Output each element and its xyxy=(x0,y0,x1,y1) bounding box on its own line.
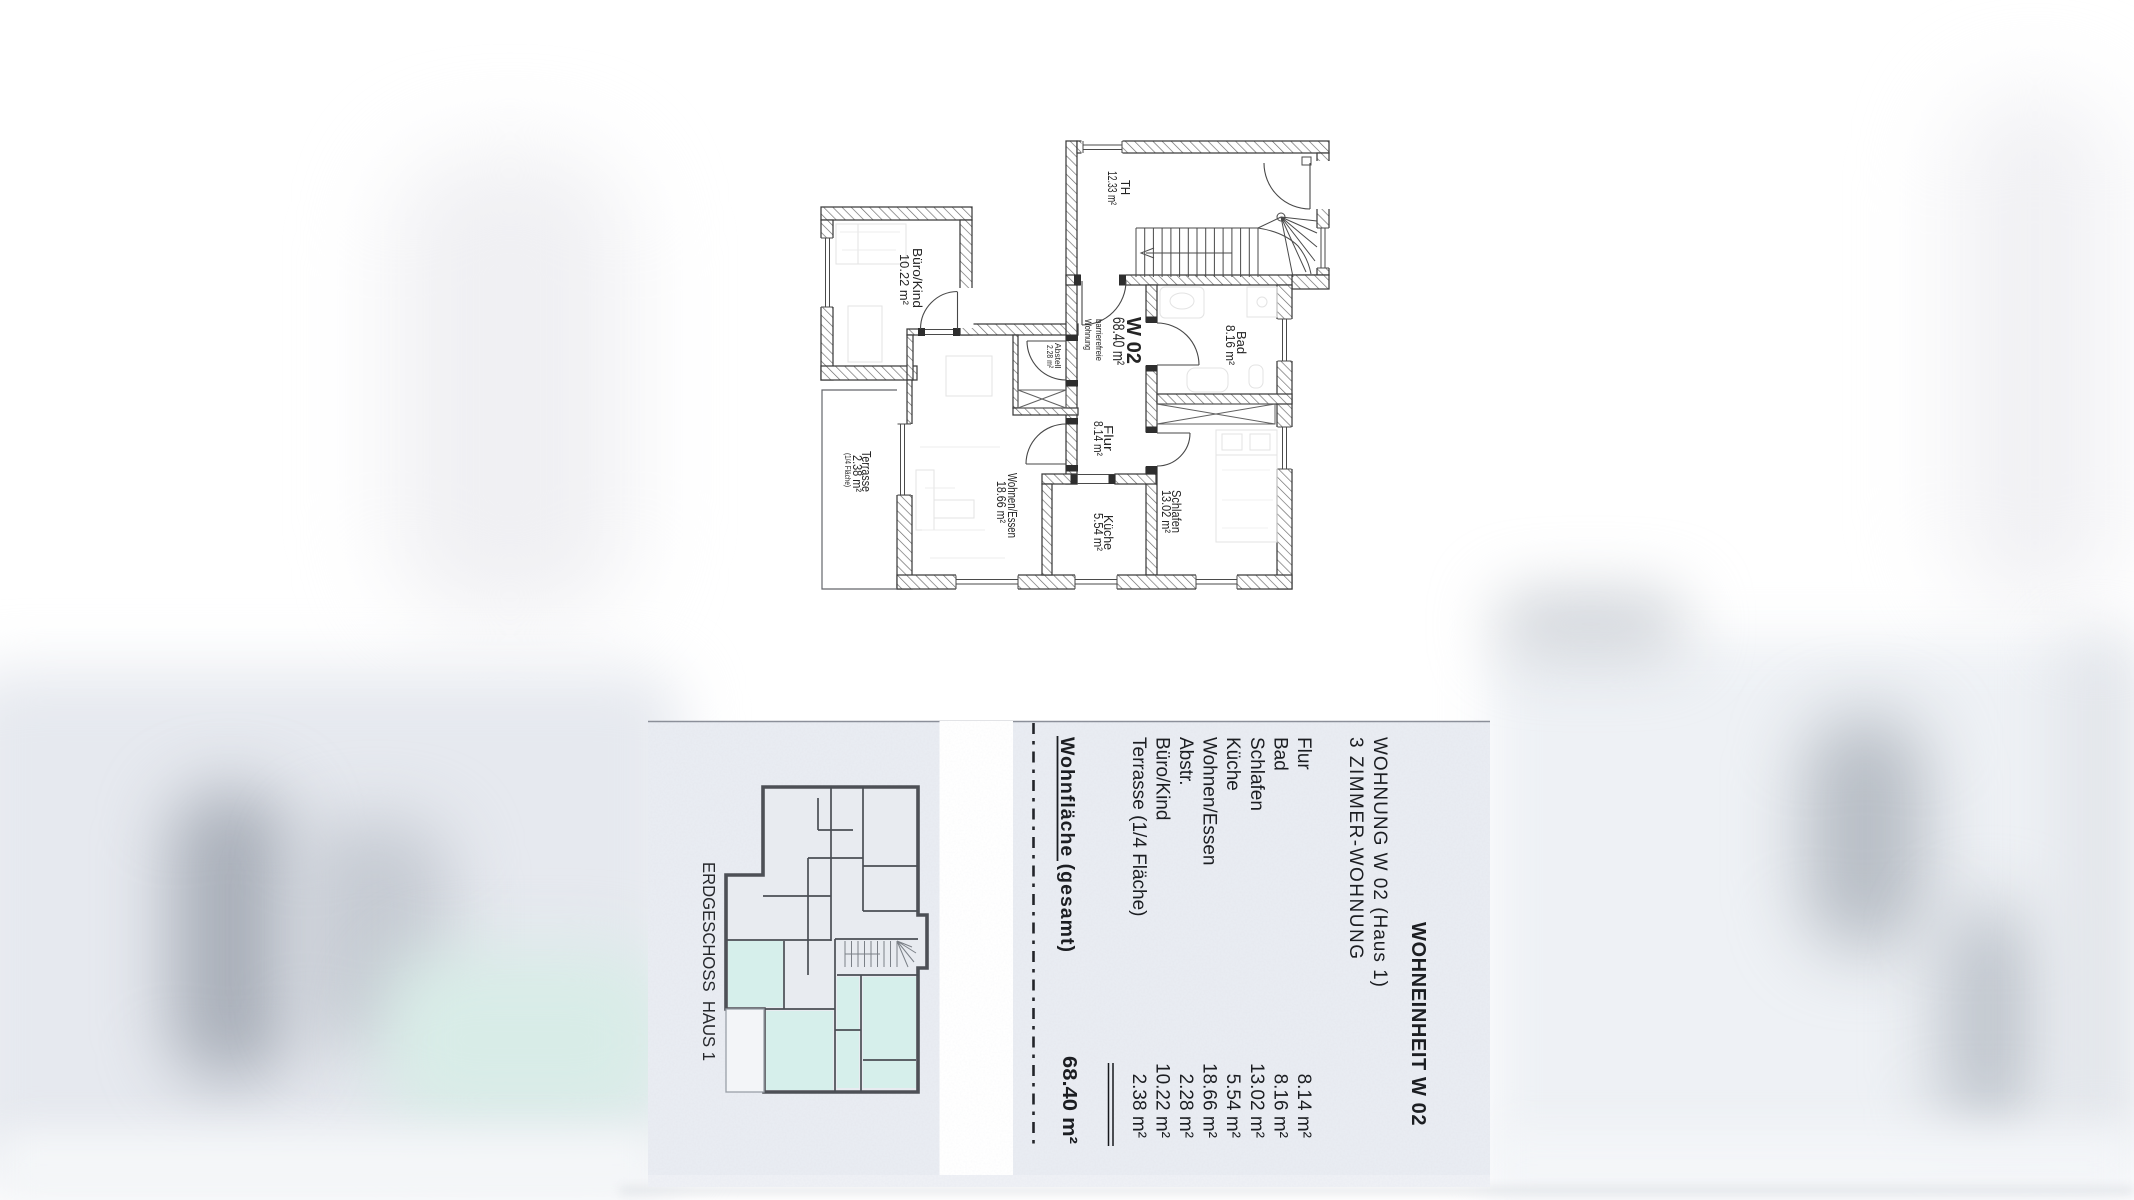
svg-text:Abstr.: Abstr. xyxy=(1175,737,1196,786)
svg-text:3 ZIMMER-WOHNUNG: 3 ZIMMER-WOHNUNG xyxy=(1345,737,1366,959)
svg-text:5.54 m²: 5.54 m² xyxy=(1222,1074,1243,1138)
svg-text:(1/4 Fläche): (1/4 Fläche) xyxy=(843,453,853,487)
svg-text:8.16 m²: 8.16 m² xyxy=(1223,325,1238,366)
svg-text:13.02 m²: 13.02 m² xyxy=(1159,490,1174,534)
svg-text:10.22 m²: 10.22 m² xyxy=(1151,1063,1172,1138)
svg-text:Wohnfläche (gesamt): Wohnfläche (gesamt) xyxy=(1056,737,1078,952)
svg-text:68.40 m²: 68.40 m² xyxy=(1058,1056,1080,1144)
svg-text:13.02 m²: 13.02 m² xyxy=(1246,1063,1267,1138)
svg-text:68.40 m²: 68.40 m² xyxy=(1109,317,1128,365)
svg-text:2.28 m²: 2.28 m² xyxy=(1045,345,1055,368)
svg-text:Bad: Bad xyxy=(1269,737,1290,771)
svg-text:18.66 m²: 18.66 m² xyxy=(994,481,1009,524)
svg-text:Büro/Kind: Büro/Kind xyxy=(1151,737,1172,820)
svg-text:barrierefreie: barrierefreie xyxy=(1093,319,1104,361)
svg-text:Wohnung: Wohnung xyxy=(1082,319,1093,350)
svg-text:Küche: Küche xyxy=(1222,737,1243,791)
svg-text:8.14 m²: 8.14 m² xyxy=(1091,421,1106,457)
svg-text:Wohnen/Essen: Wohnen/Essen xyxy=(1199,737,1220,866)
svg-text:18.66 m²: 18.66 m² xyxy=(1199,1063,1220,1138)
svg-text:12.33 m²: 12.33 m² xyxy=(1105,171,1120,205)
svg-text:WOHNUNG W 02 (Haus 1): WOHNUNG W 02 (Haus 1) xyxy=(1369,737,1390,987)
svg-text:5.54 m²: 5.54 m² xyxy=(1091,513,1105,551)
svg-text:2.38 m²: 2.38 m² xyxy=(1128,1074,1149,1138)
svg-text:Flur: Flur xyxy=(1293,737,1314,770)
svg-text:10.22 m²: 10.22 m² xyxy=(897,254,912,306)
svg-text:Schlafen: Schlafen xyxy=(1246,737,1267,811)
svg-text:8.16 m²: 8.16 m² xyxy=(1269,1074,1290,1138)
svg-text:8.14 m²: 8.14 m² xyxy=(1293,1074,1314,1138)
svg-text:WOHNEINHEIT W 02: WOHNEINHEIT W 02 xyxy=(1407,922,1429,1126)
svg-text:2.28 m²: 2.28 m² xyxy=(1175,1074,1196,1138)
svg-text:ERDGESCHOSS HAUS 1: ERDGESCHOSS HAUS 1 xyxy=(699,862,719,1061)
svg-text:Terrasse (1/4 Fläche): Terrasse (1/4 Fläche) xyxy=(1128,737,1149,917)
